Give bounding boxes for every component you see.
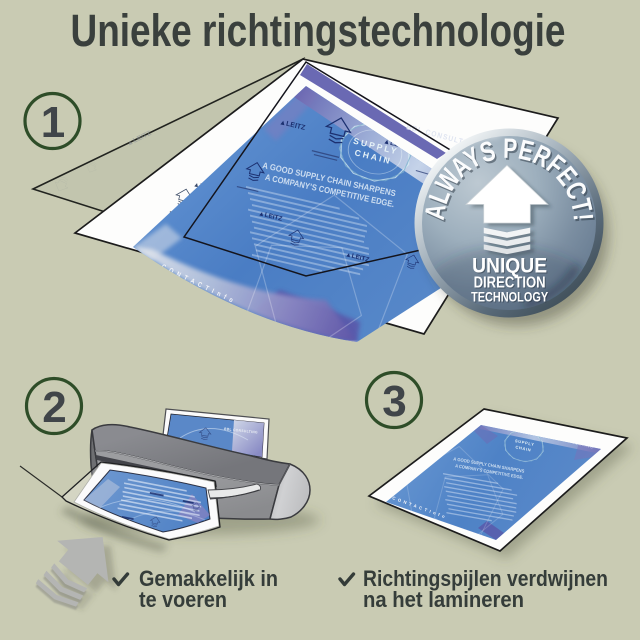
svg-text:2: 2 <box>42 383 66 432</box>
svg-text:3: 3 <box>382 377 406 426</box>
svg-text:1: 1 <box>41 98 65 147</box>
svg-text:te voeren: te voeren <box>139 587 227 612</box>
svg-text:Unieke richtingstechnologie: Unieke richtingstechnologie <box>71 5 566 56</box>
svg-text:na het lamineren: na het lamineren <box>363 587 524 612</box>
svg-text:TECHNOLOGY: TECHNOLOGY <box>471 289 549 305</box>
